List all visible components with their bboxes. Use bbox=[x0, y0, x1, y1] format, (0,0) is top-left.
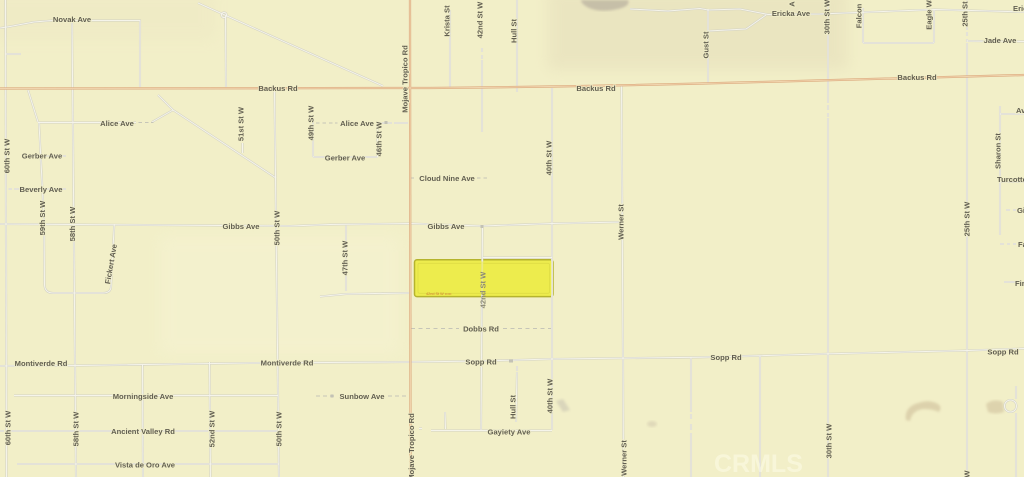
svg-text:Novak Ave: Novak Ave bbox=[53, 15, 91, 24]
svg-text:Cloud Nine Ave: Cloud Nine Ave bbox=[419, 174, 475, 183]
svg-text:42nd St W: 42nd St W bbox=[479, 271, 488, 309]
svg-text:Sunbow Ave: Sunbow Ave bbox=[339, 392, 384, 401]
svg-text:Hull St: Hull St bbox=[510, 19, 519, 44]
svg-text:46th St W: 46th St W bbox=[375, 121, 384, 156]
svg-text:Dobbs Rd: Dobbs Rd bbox=[463, 325, 499, 334]
svg-text:A: A bbox=[788, 1, 797, 7]
svg-text:25th St: 25th St bbox=[961, 1, 970, 27]
svg-text:Falcon: Falcon bbox=[855, 3, 864, 28]
svg-text:49th St W: 49th St W bbox=[307, 105, 316, 140]
svg-text:51st St W: 51st St W bbox=[237, 106, 246, 141]
svg-text:Vista de Oro Ave: Vista de Oro Ave bbox=[115, 461, 175, 470]
svg-text:Backus Rd: Backus Rd bbox=[897, 73, 937, 82]
svg-text:60th St W: 60th St W bbox=[4, 410, 13, 445]
svg-text:58th St W: 58th St W bbox=[72, 411, 81, 446]
svg-text:47th St W: 47th St W bbox=[341, 240, 350, 275]
svg-text:Gust St: Gust St bbox=[702, 31, 711, 58]
svg-text:Hull St: Hull St bbox=[509, 395, 518, 420]
svg-text:40th St W: 40th St W bbox=[546, 378, 555, 413]
svg-text:Krista St: Krista St bbox=[443, 5, 452, 37]
svg-text:60th St W: 60th St W bbox=[3, 138, 12, 173]
svg-text:Morningside Ave: Morningside Ave bbox=[113, 392, 174, 401]
svg-text:W: W bbox=[963, 470, 972, 477]
svg-text:58th St W: 58th St W bbox=[68, 206, 77, 241]
svg-text:Werner St: Werner St bbox=[617, 204, 626, 240]
svg-text:Sopp Rd: Sopp Rd bbox=[465, 358, 497, 367]
svg-text:Sopp Rd: Sopp Rd bbox=[987, 348, 1019, 357]
svg-text:Montiverde Rd: Montiverde Rd bbox=[15, 359, 68, 368]
svg-text:59th St W: 59th St W bbox=[38, 200, 47, 235]
svg-text:Ericka Ave: Ericka Ave bbox=[1013, 4, 1024, 13]
svg-text:Eagle Wa: Eagle Wa bbox=[925, 0, 934, 30]
svg-text:Gerber Ave: Gerber Ave bbox=[325, 154, 365, 163]
svg-text:25th St W: 25th St W bbox=[963, 201, 972, 236]
svg-text:Alice Ave: Alice Ave bbox=[100, 119, 134, 128]
svg-text:Ericka Ave: Ericka Ave bbox=[772, 9, 810, 18]
svg-text:Mojave Tropico Rd: Mojave Tropico Rd bbox=[401, 45, 410, 113]
svg-text:50th St W: 50th St W bbox=[275, 411, 284, 446]
svg-text:Gayiety Ave: Gayiety Ave bbox=[488, 428, 531, 437]
svg-text:Fir: Fir bbox=[1015, 279, 1024, 288]
svg-text:30th St W: 30th St W bbox=[825, 423, 834, 458]
svg-text:40th St W: 40th St W bbox=[545, 140, 554, 175]
svg-text:52nd St W: 52nd St W bbox=[208, 410, 217, 448]
svg-text:Jade Ave: Jade Ave bbox=[984, 36, 1017, 45]
svg-text:Alice Ave: Alice Ave bbox=[340, 119, 374, 128]
svg-text:30th St W: 30th St W bbox=[823, 0, 832, 34]
svg-text:Turcotte: Turcotte bbox=[997, 175, 1024, 184]
svg-text:Montiverde Rd: Montiverde Rd bbox=[261, 359, 314, 368]
svg-text:Sopp Rd: Sopp Rd bbox=[710, 353, 742, 362]
svg-text:Mojave Tropico Rd: Mojave Tropico Rd bbox=[407, 413, 416, 477]
svg-text:Gibbs Ave: Gibbs Ave bbox=[428, 222, 465, 231]
svg-text:Beverly Ave: Beverly Ave bbox=[20, 185, 63, 194]
svg-text:Gibbs Ave: Gibbs Ave bbox=[223, 222, 260, 231]
svg-text:Av: Av bbox=[1016, 106, 1024, 115]
svg-text:Sharon St: Sharon St bbox=[994, 133, 1003, 169]
svg-text:50th St W: 50th St W bbox=[273, 210, 282, 245]
svg-text:42nd St W: 42nd St W bbox=[476, 1, 485, 39]
svg-text:CRMLS: CRMLS bbox=[714, 450, 803, 477]
svg-text:Backus Rd: Backus Rd bbox=[576, 84, 616, 93]
svg-text:Werner St: Werner St bbox=[620, 440, 629, 476]
svg-text:Ancient Valley Rd: Ancient Valley Rd bbox=[111, 427, 175, 436]
svg-text:Gerber Ave: Gerber Ave bbox=[22, 152, 62, 161]
svg-text:Gi: Gi bbox=[1017, 206, 1024, 215]
svg-text:Fa: Fa bbox=[1018, 240, 1024, 249]
svg-text:Backus Rd: Backus Rd bbox=[258, 84, 298, 93]
svg-text:42nd St W •••••: 42nd St W ••••• bbox=[426, 292, 452, 296]
